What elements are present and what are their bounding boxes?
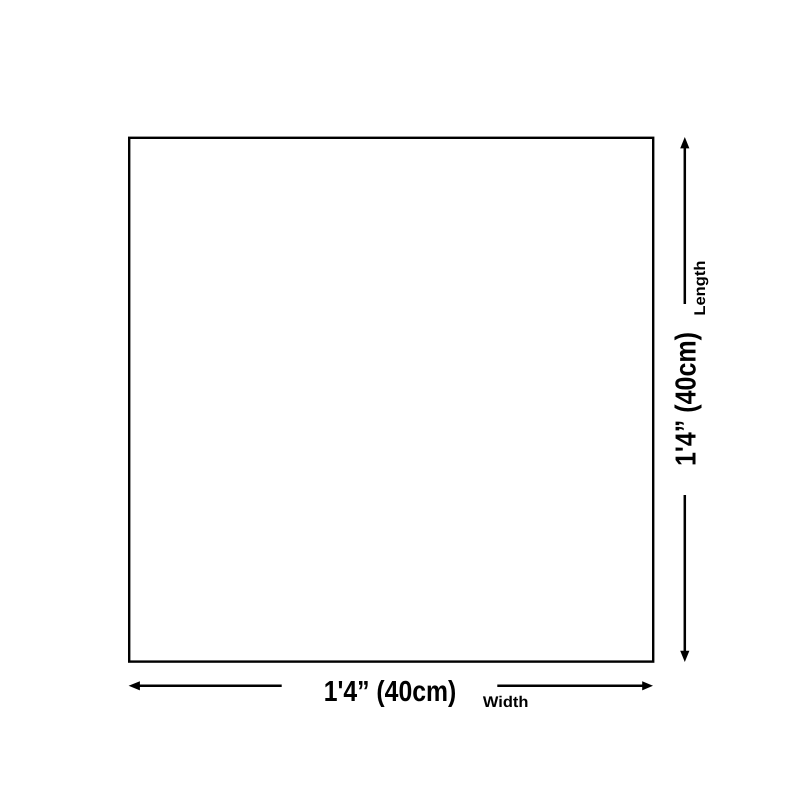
svg-text:Length: Length xyxy=(692,261,709,316)
svg-text:Width: Width xyxy=(483,694,529,711)
svg-text:1'4” (40cm): 1'4” (40cm) xyxy=(671,332,703,466)
svg-text:1'4” (40cm): 1'4” (40cm) xyxy=(324,676,457,708)
